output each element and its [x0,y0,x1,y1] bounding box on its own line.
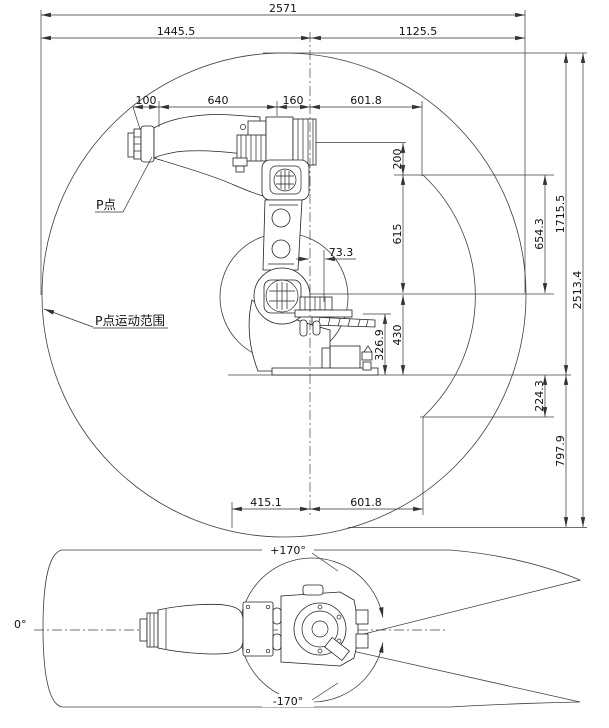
p-point-label: P点 [96,197,116,212]
dim-total-width: 2571 [41,2,525,15]
dim-text-160: 160 [283,94,304,107]
dim-text-415-1: 415.1 [250,496,282,509]
dim-upper-right-reach: 601.8 [310,94,422,107]
dim-elbow-to-shoulder: 615 [391,175,404,293]
arc-arrow-plus [379,607,385,618]
dim-reach-right: 1125.5 [311,25,525,38]
p-range-callout: P点运动范围 [43,307,168,328]
dim-text-1125-5: 1125.5 [399,25,438,38]
angle-minus-label: -170° [273,695,303,708]
dim-axis-offset: 73.3 [296,246,356,259]
forearm-gearbox [266,117,293,163]
dim-elbow-offset: 160 [277,94,310,107]
arc-arrow-minus [379,642,385,653]
dim-lower-right-reach: 601.8 [310,496,423,509]
elbow-housing-top [243,602,273,656]
dim-reach-left: 1445.5 [41,25,311,38]
dim-text-326-9: 326.9 [373,329,386,361]
dim-lower-left-reach: 415.1 [232,496,310,509]
dim-p-to-elbow: 200 [391,143,404,175]
tool-flange [128,133,134,157]
dim-height-above-ground: 1715.5 [554,53,567,375]
base-plate [272,368,378,375]
wrist-body [141,126,154,162]
dim-shoulder-to-ground: 430 [391,295,404,375]
dim-text-100: 100 [136,94,157,107]
dim-text-2513-4: 2513.4 [571,271,584,310]
dim-inner-arc-height: 654.3 [533,175,546,293]
robot-top-silhouette [140,585,368,666]
dim-text-601-8-top: 601.8 [350,94,382,107]
dim-lower-height: 797.9 [554,375,567,527]
j4-connector [293,119,316,165]
dim-text-615: 615 [391,224,404,245]
dim-text-654-3: 654.3 [533,218,546,250]
robot-envelope-drawing: 2571 1445.5 1125.5 100 640 160 [0,0,609,728]
forearm-top [158,604,243,654]
wrist-motor-housing [248,121,266,136]
dim-flange-to-p: 100 [133,94,159,107]
dim-text-200: 200 [391,149,404,170]
inner-envelope-arc [423,175,475,417]
dim-text-601-8-bottom: 601.8 [350,496,382,509]
angle-zero-label: 0° [14,618,27,631]
dim-below-ground: 224.3 [533,375,546,417]
dim-text-2571: 2571 [269,2,297,15]
callouts: P点 P点运动范围 [43,157,168,328]
dim-text-640: 640 [208,94,229,107]
dim-text-73-3: 73.3 [329,246,354,259]
dim-text-224-3: 224.3 [533,380,546,412]
turntable-plate [312,317,375,327]
p-point-callout: P点 [95,157,152,212]
dim-text-1445-5: 1445.5 [157,25,196,38]
top-view: +170° -170° 0° [14,543,580,708]
dim-text-797-9: 797.9 [554,435,567,467]
p-range-label: P点运动范围 [95,313,165,328]
angle-plus-label: +170° [270,544,306,557]
robot-side-silhouette [128,115,378,375]
side-view: 2571 1445.5 1125.5 100 640 160 [41,2,587,537]
dim-text-430: 430 [391,325,404,346]
dim-total-height: 2513.4 [571,53,584,527]
dim-text-1715-5: 1715.5 [554,195,567,234]
dimensions-side: 2571 1445.5 1125.5 100 640 160 [41,2,584,528]
drawing-canvas: 2571 1445.5 1125.5 100 640 160 [0,0,609,728]
dim-forearm: 640 [159,94,277,107]
